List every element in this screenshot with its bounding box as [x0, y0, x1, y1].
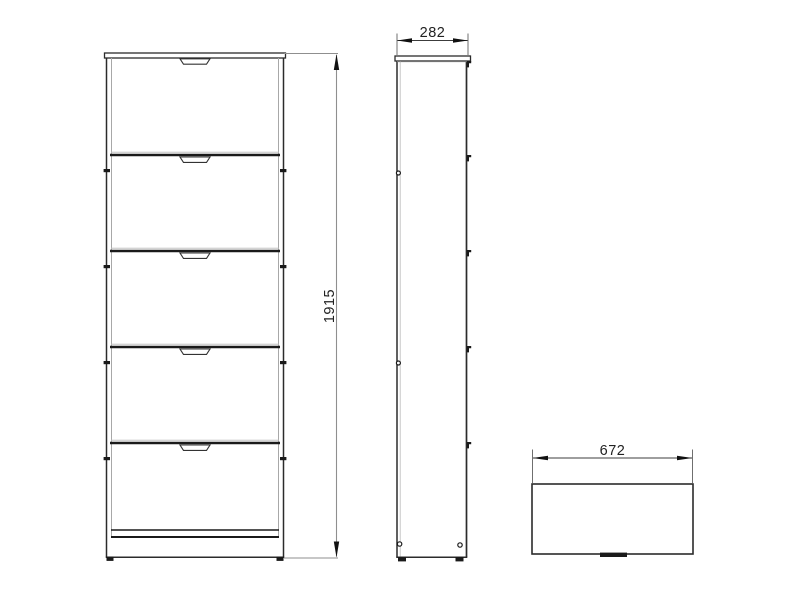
- connector-tick: [280, 169, 286, 172]
- arrowhead-right: [677, 456, 693, 461]
- drawer-handles: [180, 59, 210, 451]
- width-dimension: 672: [533, 443, 693, 483]
- screw-hole: [396, 171, 400, 175]
- connector-tick: [280, 361, 286, 364]
- connector-tick: [104, 457, 110, 460]
- width-dimension-label: 672: [600, 443, 626, 459]
- foot-pad: [398, 557, 406, 561]
- technical-drawing-canvas: 1915: [0, 0, 800, 600]
- foot-pad: [456, 557, 464, 561]
- top-view-handle-notch: [600, 553, 627, 557]
- connector-tick: [104, 169, 110, 172]
- screw-hole: [397, 542, 401, 546]
- depth-dimension: 282: [397, 25, 468, 55]
- drawer-handle-notch: [180, 349, 210, 354]
- screw-hole: [396, 361, 400, 365]
- foot-pad: [107, 557, 114, 561]
- arrowhead-left: [533, 456, 549, 461]
- technical-drawing-page: 1915: [0, 0, 800, 600]
- front-view: [104, 53, 287, 561]
- connector-tick: [104, 265, 110, 268]
- drawer-dividers: [110, 152, 280, 443]
- drawer-handle-notch: [180, 445, 210, 450]
- hinge-hook: [467, 155, 471, 161]
- drawer-handle-notch: [180, 157, 210, 162]
- drawer-handle-notch: [180, 59, 210, 64]
- connector-tick: [104, 361, 110, 364]
- arrowhead-down: [334, 542, 339, 558]
- hinge-hook: [467, 346, 471, 352]
- screw-hole: [458, 543, 462, 547]
- hinge-hook: [467, 442, 471, 448]
- front-top-panel: [105, 53, 286, 58]
- arrowhead-up: [334, 54, 339, 70]
- side-hinge-hooks: [467, 61, 471, 448]
- arrowhead-right: [453, 38, 468, 43]
- top-view: [532, 484, 693, 557]
- height-dimension-label: 1915: [322, 289, 338, 323]
- drawer-handle-notch: [180, 253, 210, 258]
- side-screw-holes: [396, 171, 462, 547]
- height-dimension: 1915: [284, 54, 339, 559]
- hinge-hook: [467, 61, 471, 67]
- top-view-outline: [532, 484, 693, 554]
- side-view: [395, 56, 471, 561]
- front-connector-ticks: [104, 169, 287, 460]
- side-top-panel: [395, 56, 471, 61]
- depth-dimension-label: 282: [420, 25, 446, 41]
- connector-tick: [280, 457, 286, 460]
- hinge-hook: [467, 250, 471, 256]
- front-bottom-rail: [111, 530, 279, 537]
- connector-tick: [280, 265, 286, 268]
- arrowhead-left: [397, 38, 412, 43]
- foot-pad: [277, 557, 284, 561]
